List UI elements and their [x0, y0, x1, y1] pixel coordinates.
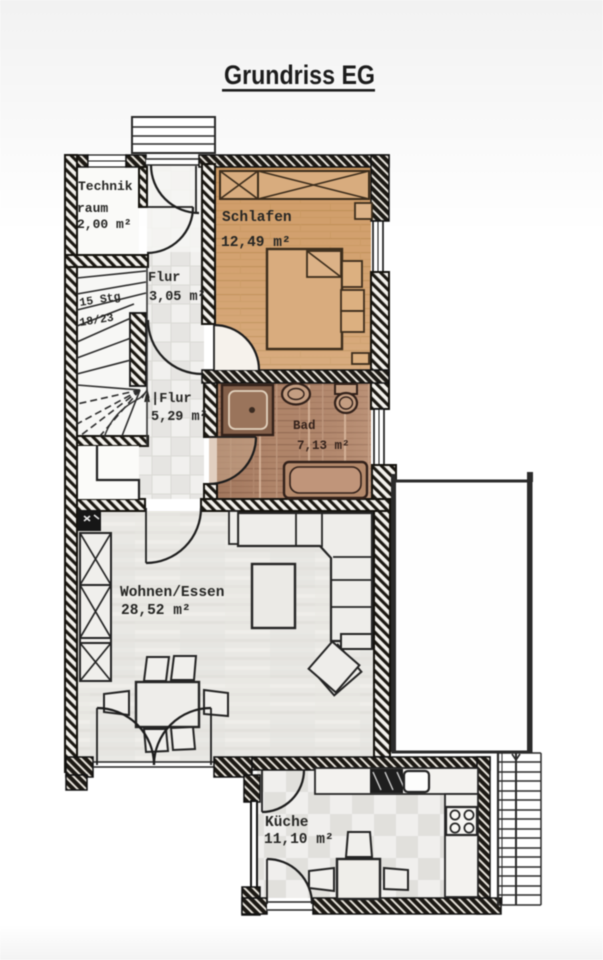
- svg-text:Bad: Bad: [293, 419, 316, 433]
- svg-text:5,29 m²: 5,29 m²: [151, 410, 208, 425]
- svg-text:raum: raum: [77, 201, 108, 216]
- svg-text:28,52 m²: 28,52 m²: [121, 603, 191, 619]
- svg-text:Technik: Technik: [78, 179, 133, 194]
- svg-text:Küche: Küche: [265, 815, 309, 831]
- svg-text:7,13 m²: 7,13 m²: [297, 439, 350, 453]
- svg-text:Wohnen/Essen: Wohnen/Essen: [120, 585, 224, 601]
- svg-text:Flur: Flur: [148, 271, 180, 286]
- svg-text:3,05 m²: 3,05 m²: [149, 290, 206, 305]
- svg-text:∧|Flur: ∧|Flur: [143, 392, 192, 407]
- svg-text:11,10 m²: 11,10 m²: [264, 832, 334, 848]
- svg-text:12,49 m²: 12,49 m²: [221, 235, 291, 251]
- svg-text:Grundriss EG: Grundriss EG: [224, 60, 375, 90]
- svg-text:Schlafen: Schlafen: [222, 210, 292, 226]
- svg-text:2,00 m²: 2,00 m²: [77, 217, 132, 232]
